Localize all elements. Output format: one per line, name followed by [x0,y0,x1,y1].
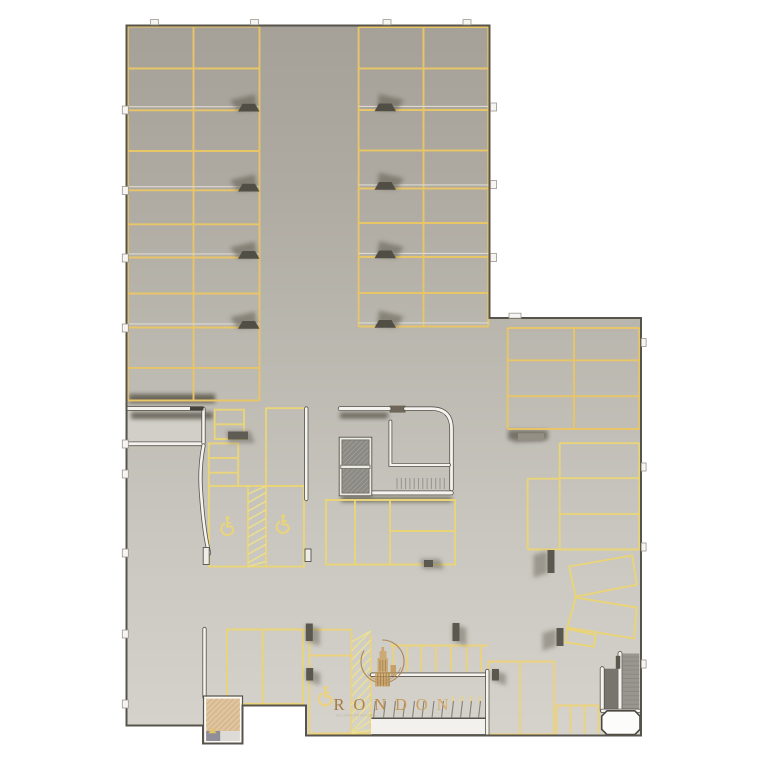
svg-text:INCORPORADORA: INCORPORADORA [336,714,377,718]
